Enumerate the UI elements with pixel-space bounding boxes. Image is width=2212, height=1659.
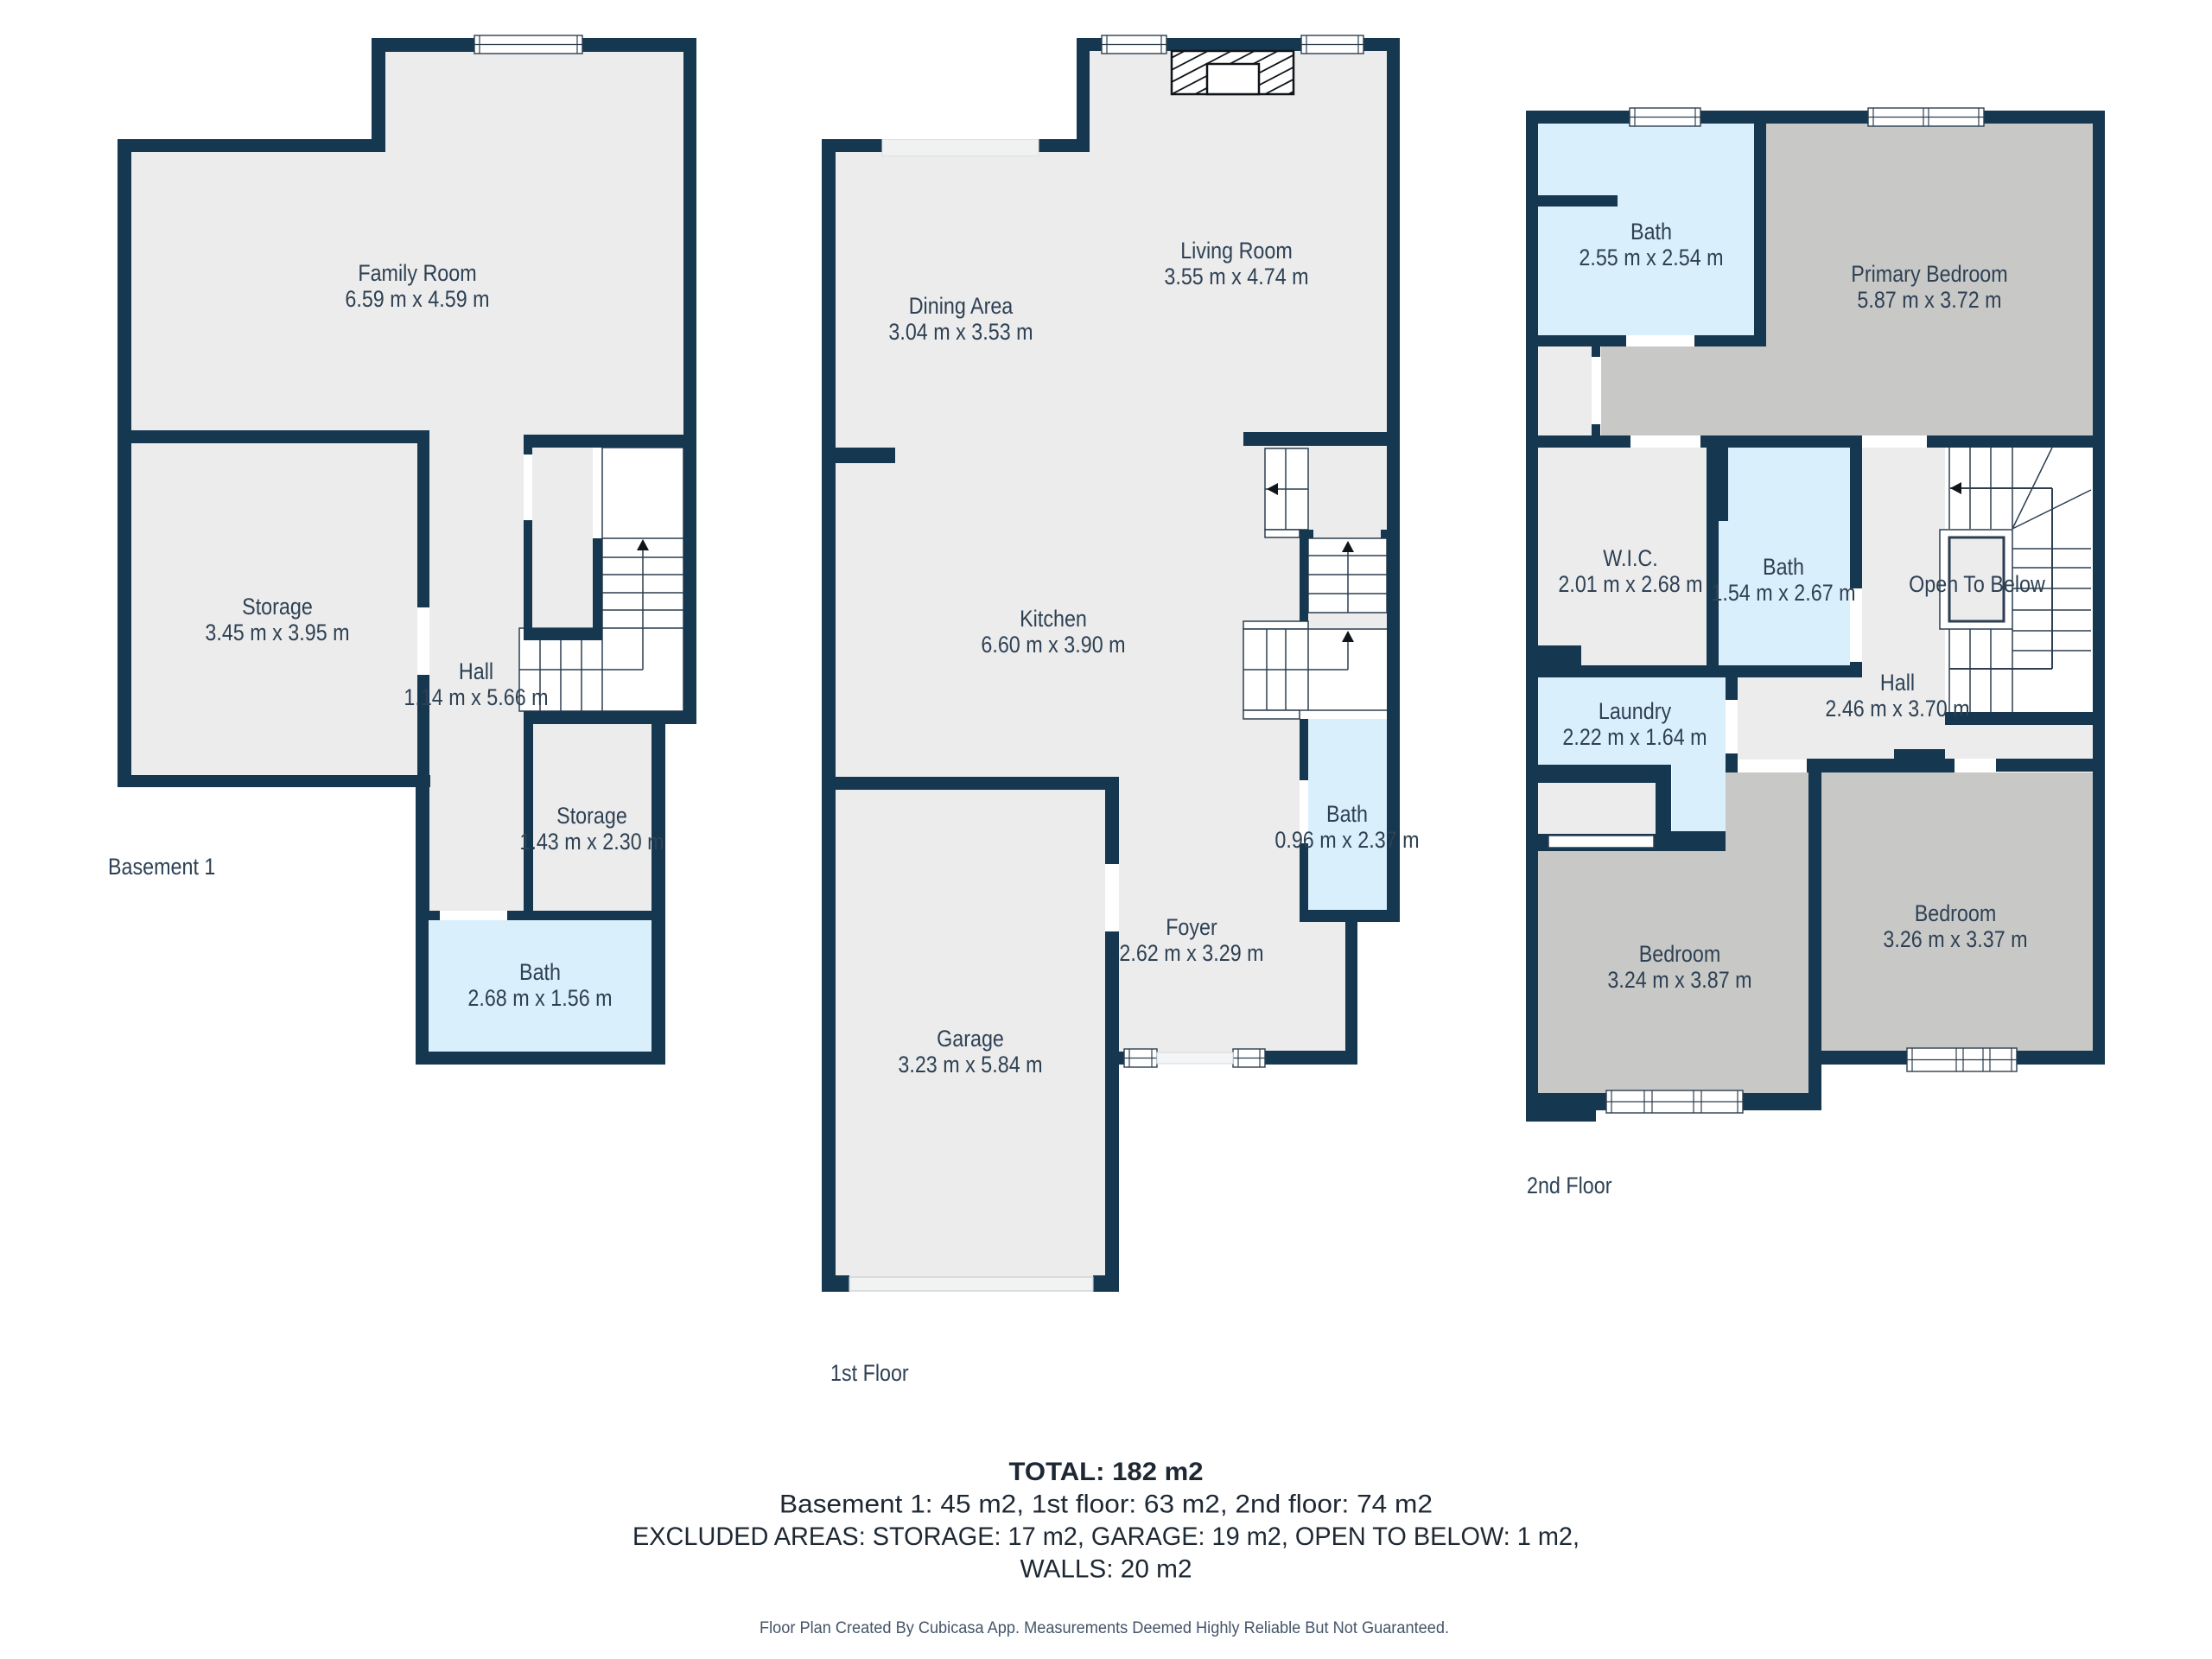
svg-text:1.54 m x 2.67 m: 1.54 m x 2.67 m [1711, 580, 1855, 606]
svg-text:TOTAL: 182 m2: TOTAL: 182 m2 [1009, 1458, 1204, 1486]
svg-text:Basement 1: Basement 1 [108, 854, 215, 880]
svg-text:Primary Bedroom: Primary Bedroom [1851, 261, 2007, 287]
svg-text:2.55 m x 2.54 m: 2.55 m x 2.54 m [1579, 245, 1723, 270]
svg-text:Bath: Bath [1630, 219, 1672, 245]
svg-text:1.43 m x 2.30 m: 1.43 m x 2.30 m [519, 829, 664, 855]
svg-text:1.14 m x 5.66 m: 1.14 m x 5.66 m [404, 684, 548, 710]
svg-text:Dining Area: Dining Area [909, 293, 1014, 319]
svg-text:3.45 m x 3.95 m: 3.45 m x 3.95 m [205, 620, 349, 645]
svg-text:2.68 m x 1.56 m: 2.68 m x 1.56 m [467, 985, 612, 1011]
svg-text:3.24 m x 3.87 m: 3.24 m x 3.87 m [1607, 967, 1751, 993]
svg-text:2.01 m x 2.68 m: 2.01 m x 2.68 m [1558, 571, 1702, 597]
svg-text:Bath: Bath [519, 959, 561, 985]
svg-text:Bedroom: Bedroom [1915, 900, 1997, 926]
svg-text:0.96 m x 2.37 m: 0.96 m x 2.37 m [1274, 827, 1419, 853]
svg-text:Living Room: Living Room [1180, 238, 1293, 264]
svg-text:2.62 m x 3.29 m: 2.62 m x 3.29 m [1119, 940, 1263, 966]
svg-text:Basement 1: 45 m2, 1st floor:: Basement 1: 45 m2, 1st floor: 63 m2, 2nd… [779, 1491, 1433, 1519]
svg-text:WALLS: 20 m2: WALLS: 20 m2 [1020, 1555, 1192, 1584]
svg-text:Family Room: Family Room [358, 260, 476, 286]
svg-text:Laundry: Laundry [1599, 698, 1672, 724]
svg-text:Kitchen: Kitchen [1020, 606, 1087, 632]
svg-text:Bath: Bath [1326, 801, 1368, 827]
svg-text:Foyer: Foyer [1166, 914, 1217, 940]
svg-text:3.04 m x 3.53 m: 3.04 m x 3.53 m [888, 319, 1033, 345]
svg-text:Storage: Storage [242, 594, 313, 620]
svg-text:2.46 m x 3.70 m: 2.46 m x 3.70 m [1825, 696, 1969, 721]
svg-text:W.I.C.: W.I.C. [1603, 545, 1658, 571]
svg-text:EXCLUDED AREAS: STORAGE: 17 m2: EXCLUDED AREAS: STORAGE: 17 m2, GARAGE: … [632, 1522, 1580, 1551]
svg-text:Hall: Hall [1880, 670, 1915, 696]
svg-text:3.23 m x 5.84 m: 3.23 m x 5.84 m [898, 1052, 1042, 1077]
svg-text:3.26 m x 3.37 m: 3.26 m x 3.37 m [1883, 926, 2027, 952]
svg-text:Bedroom: Bedroom [1639, 941, 1721, 967]
svg-text:Floor Plan Created By Cubicasa: Floor Plan Created By Cubicasa App. Meas… [760, 1619, 1449, 1637]
svg-text:Hall: Hall [459, 658, 493, 684]
svg-text:3.55 m x 4.74 m: 3.55 m x 4.74 m [1164, 264, 1308, 289]
svg-text:Storage: Storage [556, 803, 627, 829]
svg-text:2nd Floor: 2nd Floor [1527, 1173, 1612, 1198]
svg-text:1st Floor: 1st Floor [830, 1360, 909, 1386]
svg-text:6.60 m x 3.90 m: 6.60 m x 3.90 m [981, 632, 1125, 658]
svg-text:Bath: Bath [1763, 554, 1804, 580]
svg-text:Garage: Garage [937, 1026, 1004, 1052]
svg-text:Open To Below: Open To Below [1909, 571, 2045, 597]
svg-text:2.22 m x 1.64 m: 2.22 m x 1.64 m [1562, 724, 1707, 750]
svg-text:6.59 m x 4.59 m: 6.59 m x 4.59 m [345, 286, 489, 312]
svg-text:5.87 m x 3.72 m: 5.87 m x 3.72 m [1857, 287, 2001, 313]
